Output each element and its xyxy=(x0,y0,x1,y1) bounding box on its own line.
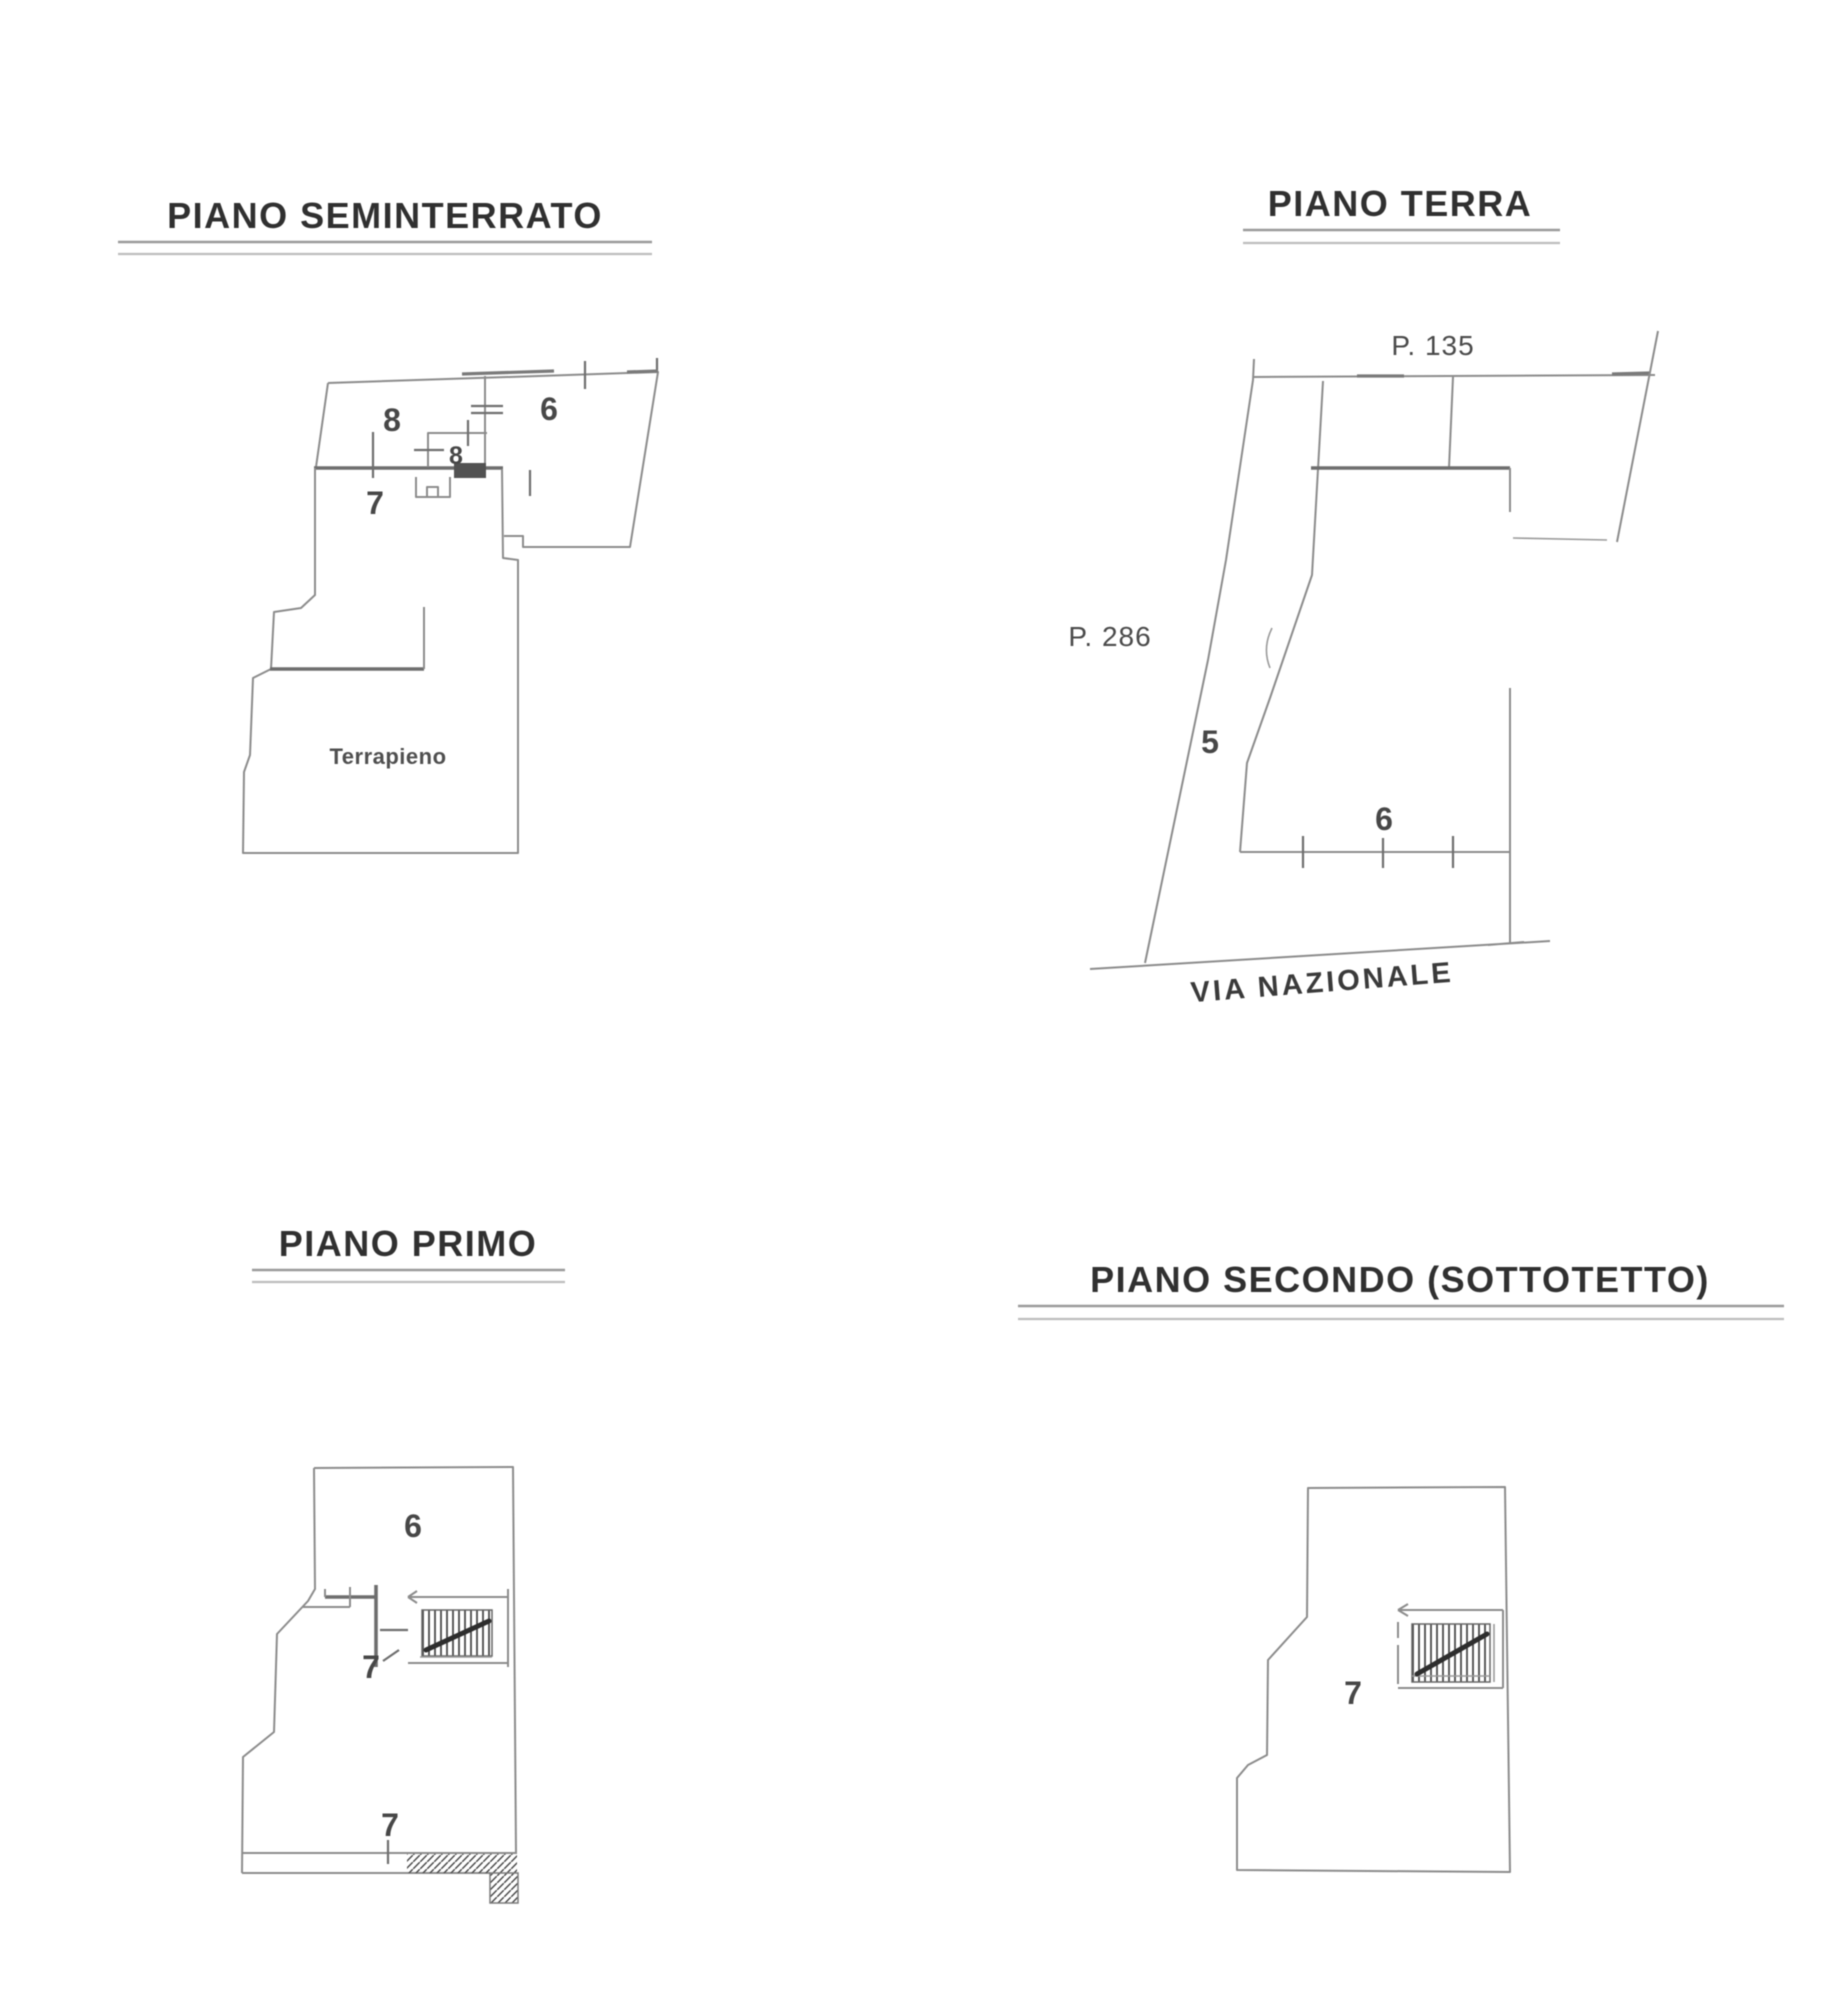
terra-street-line xyxy=(1090,941,1550,969)
plan-seminterrato: 8 6 8 7 Terrapieno xyxy=(243,358,658,853)
terra-parcel135-line xyxy=(1253,375,1655,377)
terra-door-arc xyxy=(1266,628,1272,668)
seminterrato-door-ticks xyxy=(373,358,657,496)
floor-plan-sheet: PIANO SEMINTERRATO PIANO TERRA PIANO PRI… xyxy=(0,0,1839,2000)
seminterrato-understair-bracket xyxy=(416,477,450,497)
terra-parcel-right-boundary xyxy=(1617,331,1658,542)
stair-room-label-8: 8 xyxy=(449,442,463,470)
area-label-5: 5 xyxy=(1201,724,1219,760)
terra-notch-line xyxy=(1513,538,1607,540)
title-seminterrato: PIANO SEMINTERRATO xyxy=(167,195,603,236)
plan-primo: 6 7 7 xyxy=(242,1467,518,1903)
terra-parcel286-boundary xyxy=(1145,359,1254,963)
primo-outline-left xyxy=(242,1468,315,1873)
room-label-6: 6 xyxy=(404,1508,422,1544)
terrain-label: Terrapieno xyxy=(329,744,446,769)
room-label-7-lower: 7 xyxy=(381,1807,399,1843)
title-secondo: PIANO SECONDO (SOTTOTETTO) xyxy=(1090,1259,1710,1300)
seminterrato-left-upper-edge xyxy=(316,383,328,467)
terra-building-left-wall xyxy=(1240,381,1323,852)
title-primo: PIANO PRIMO xyxy=(279,1223,538,1264)
room-label-6: 6 xyxy=(540,391,558,427)
room-label-8: 8 xyxy=(383,402,401,438)
primo-band-hatch xyxy=(407,1854,517,1873)
parcel-label-286: P. 286 xyxy=(1068,621,1151,652)
floor-plan-drawing: PIANO SEMINTERRATO PIANO TERRA PIANO PRI… xyxy=(0,0,1839,2000)
terra-interior-wall xyxy=(1449,377,1453,468)
room-label-7: 7 xyxy=(366,485,384,521)
room-label-7-upper: 7 xyxy=(362,1649,380,1685)
plan-terra: P. 135 P. 286 5 6 VIA NAZIONALE xyxy=(1068,330,1658,1009)
room-label-7: 7 xyxy=(1344,1675,1362,1711)
seminterrato-lower-outline xyxy=(243,468,518,853)
primo-corner-hatch xyxy=(490,1873,518,1903)
area-label-6: 6 xyxy=(1375,801,1393,837)
street-label: VIA NAZIONALE xyxy=(1189,957,1454,1010)
title-terra: PIANO TERRA xyxy=(1268,183,1533,224)
parcel-label-135: P. 135 xyxy=(1391,330,1474,361)
plan-secondo: 7 xyxy=(1237,1487,1510,1872)
